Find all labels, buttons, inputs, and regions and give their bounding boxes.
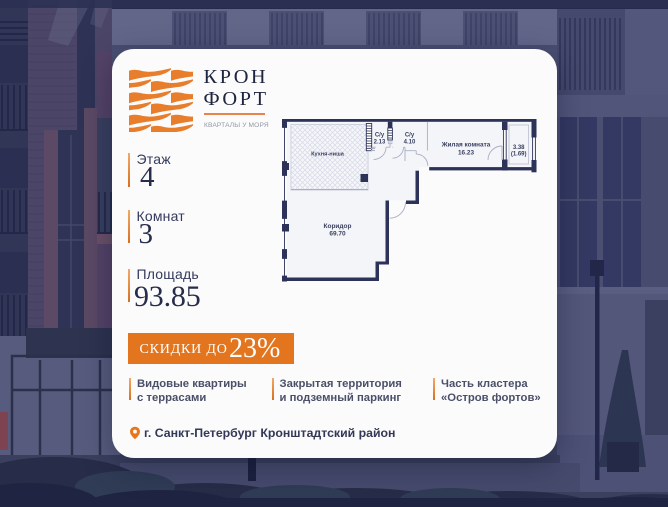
svg-text:2.13: 2.13	[374, 139, 386, 145]
svg-text:Коридор: Коридор	[324, 223, 352, 230]
svg-text:(1.69): (1.69)	[511, 152, 527, 158]
svg-text:3.38: 3.38	[513, 145, 525, 151]
svg-text:Жилая комната: Жилая комната	[441, 142, 491, 149]
svg-text:69.70: 69.70	[329, 231, 346, 238]
svg-text:С/у: С/у	[405, 132, 415, 138]
svg-text:С/у: С/у	[375, 132, 385, 138]
svg-text:4.10: 4.10	[404, 139, 416, 145]
svg-text:16.23: 16.23	[458, 150, 474, 157]
svg-text:Кухня-ниша: Кухня-ниша	[311, 151, 345, 157]
